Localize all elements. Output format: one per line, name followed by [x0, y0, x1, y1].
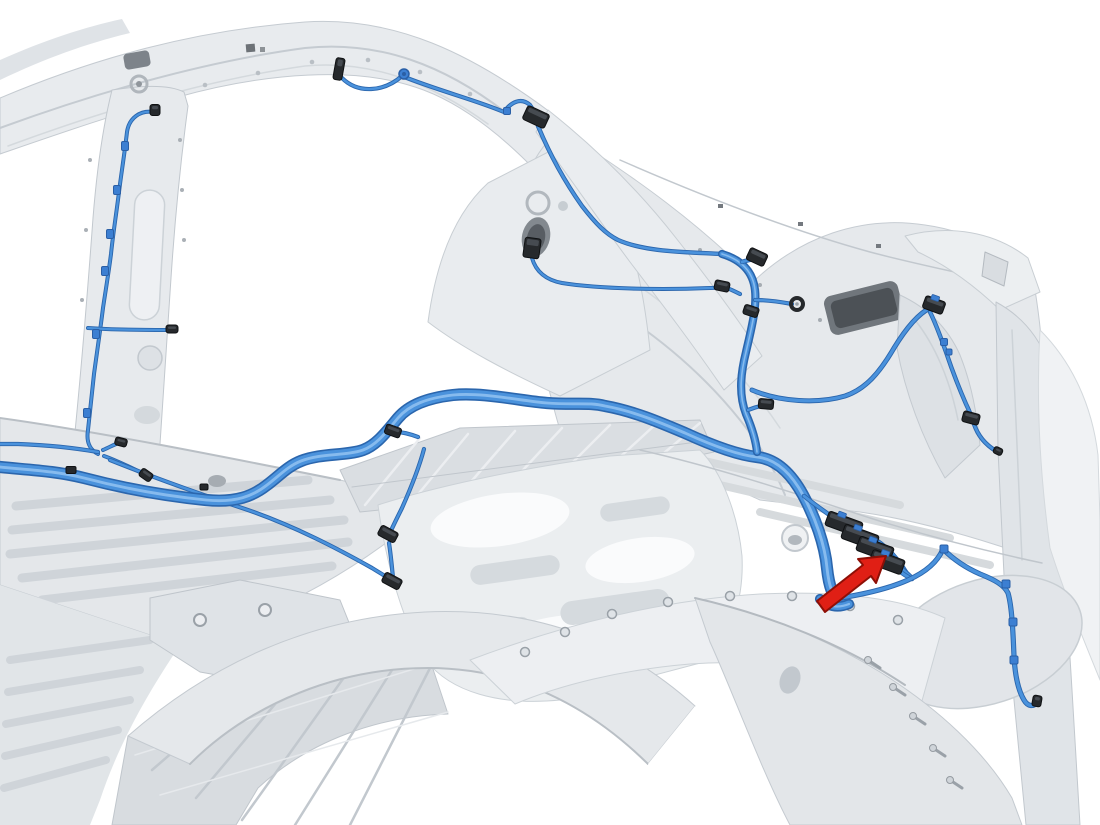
- body-structure: [0, 19, 1100, 825]
- connector-body: [758, 398, 774, 409]
- junction-round-hole-core: [788, 535, 802, 545]
- quarter-top-connector: [746, 247, 769, 267]
- harness-clip-blue: [107, 230, 114, 239]
- service-illustration: [0, 0, 1100, 825]
- connector-body: [1032, 695, 1043, 707]
- harness-clip-blue: [114, 186, 121, 195]
- harness-clip-black: [200, 484, 208, 490]
- eyelet-stud: [795, 302, 799, 306]
- roof-rail-vent-hole: [246, 44, 256, 53]
- b-pillar-emboss: [129, 189, 166, 320]
- quarter-low-connector: [758, 398, 774, 409]
- connector-face: [168, 327, 176, 329]
- harness-clip-blue: [504, 108, 511, 115]
- rear-end-connector: [1032, 695, 1043, 707]
- c-pillar-mid-connector: [523, 237, 542, 259]
- body-harness-diagram: [0, 0, 1100, 825]
- floor-oval-hole-3: [208, 475, 226, 487]
- harness-grommet-core: [402, 72, 406, 76]
- b-pillar-recess: [134, 406, 160, 424]
- harness-clip-blue: [1002, 580, 1010, 588]
- harness-clip-blue: [84, 409, 91, 418]
- b-pillar-hole: [138, 346, 162, 370]
- connector-face: [152, 106, 158, 109]
- b-pillar-top-clip: [150, 105, 160, 116]
- small-hole: [558, 201, 568, 211]
- harness-clip-black: [66, 467, 76, 474]
- harness-segment-pillar-mid-stub: [88, 328, 166, 330]
- harness-clip-blue: [946, 349, 952, 355]
- harness-clip-blue: [102, 267, 109, 276]
- harness-clip-blue: [93, 330, 100, 339]
- harness-clip-blue: [122, 142, 129, 151]
- harness-clip-blue: [1009, 618, 1017, 626]
- pillar-mid-end-clip: [166, 325, 178, 333]
- harness-clip-blue: [940, 545, 948, 553]
- harness-clip-blue: [1010, 656, 1018, 664]
- connector-body: [166, 325, 178, 333]
- b-pillar-top-grommet-core: [136, 81, 142, 87]
- harness-clip-blue: [941, 339, 948, 346]
- roof-rail-vent-hole-small: [260, 47, 265, 52]
